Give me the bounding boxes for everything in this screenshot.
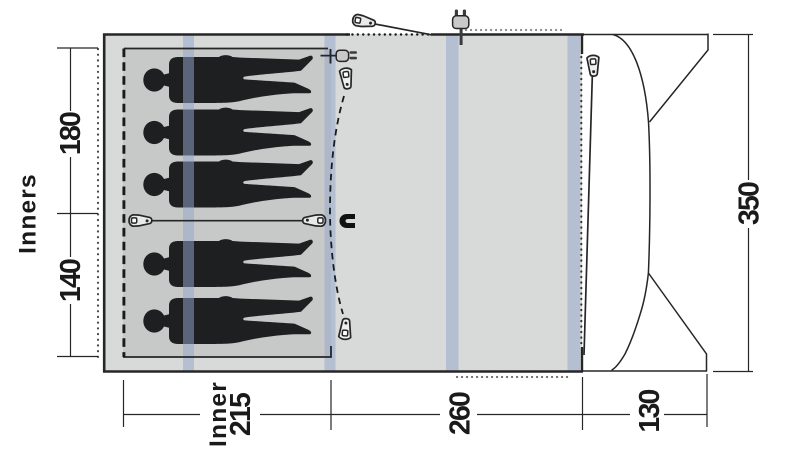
svg-text:Inners: Inners <box>15 173 42 254</box>
svg-text:215: 215 <box>225 392 257 436</box>
svg-text:180: 180 <box>55 112 87 155</box>
svg-text:130: 130 <box>634 389 666 432</box>
svg-text:350: 350 <box>734 182 766 225</box>
svg-text:260: 260 <box>445 392 477 435</box>
svg-text:140: 140 <box>55 259 87 302</box>
